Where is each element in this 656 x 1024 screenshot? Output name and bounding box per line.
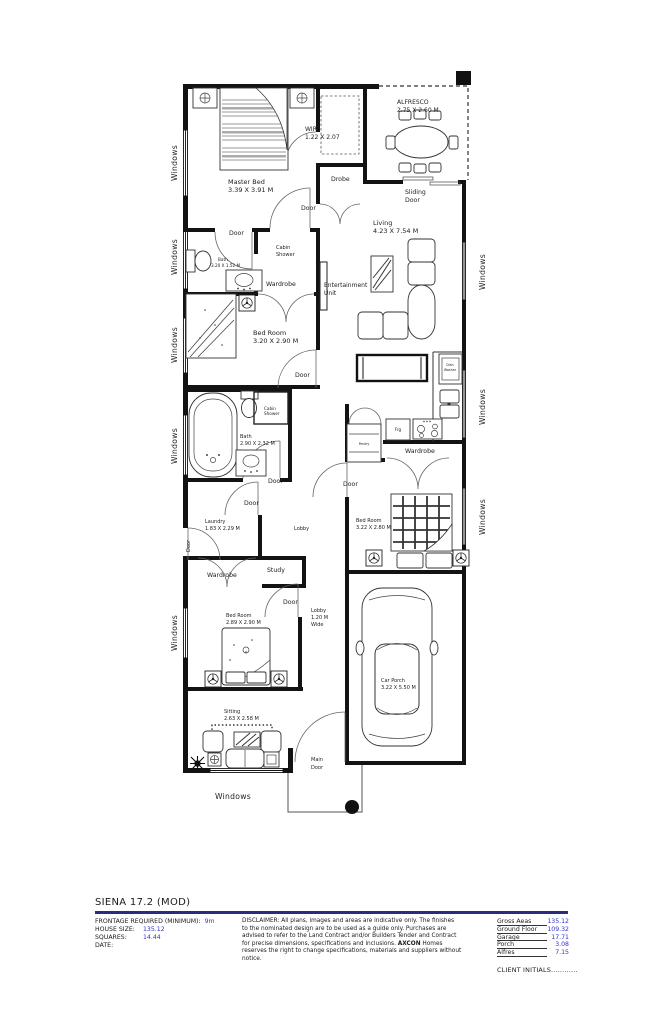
sofa bbox=[358, 239, 435, 339]
svg-text:4.23 X 7.54 M: 4.23 X 7.54 M bbox=[373, 227, 418, 235]
living-furniture bbox=[320, 239, 435, 381]
sitting-furniture bbox=[190, 725, 281, 771]
svg-text:Washer: Washer bbox=[444, 368, 457, 372]
label-pantry: Pantry bbox=[359, 442, 370, 446]
label-fridge: Frg bbox=[395, 427, 402, 432]
label-bed2: Bed Room bbox=[253, 329, 286, 337]
svg-text:3.20 X 2.90 M: 3.20 X 2.90 M bbox=[253, 337, 298, 345]
svg-text:Windows: Windows bbox=[170, 615, 179, 651]
label-bath1: Bath bbox=[218, 257, 228, 262]
label-laundry: Laundry bbox=[205, 519, 225, 525]
title-rule bbox=[95, 911, 568, 914]
svg-text:Door: Door bbox=[186, 539, 192, 552]
svg-text:Door: Door bbox=[311, 765, 324, 771]
bed4-furniture bbox=[366, 494, 469, 568]
svg-text:Door: Door bbox=[283, 599, 298, 606]
svg-text:Door: Door bbox=[301, 205, 316, 212]
brand-name: AXCON bbox=[398, 941, 421, 947]
svg-text:3.39 X 3.91 M: 3.39 X 3.91 M bbox=[228, 186, 273, 194]
corner-post bbox=[456, 71, 471, 85]
bed2-furniture bbox=[186, 294, 255, 358]
svg-text:Door: Door bbox=[343, 481, 358, 488]
alfresco-dining-set bbox=[386, 110, 458, 173]
pillow bbox=[247, 672, 266, 683]
label-lobby-wide: Lobby bbox=[311, 608, 326, 614]
pillow bbox=[426, 553, 452, 568]
svg-text:2.89 X 2.90 M: 2.89 X 2.90 M bbox=[226, 620, 261, 626]
table-row: Porch3.08 bbox=[497, 941, 569, 949]
svg-text:Windows: Windows bbox=[170, 327, 179, 363]
pillow bbox=[397, 553, 423, 568]
svg-text:Door: Door bbox=[295, 372, 310, 379]
label-bath2: Bath bbox=[240, 434, 252, 440]
squares-value: 14.44 bbox=[143, 934, 161, 941]
client-initials: CLIENT INITIALS............ bbox=[497, 966, 578, 974]
svg-text:Unit: Unit bbox=[324, 290, 337, 297]
svg-text:3.22 X 5.50 M: 3.22 X 5.50 M bbox=[381, 685, 416, 691]
svg-text:1.83 X 2.29 M: 1.83 X 2.29 M bbox=[205, 526, 240, 532]
svg-text:3.20 X 1.52 M: 3.20 X 1.52 M bbox=[211, 263, 241, 268]
table-row: Ground Floor109.32 bbox=[497, 926, 569, 934]
floor-plan-drawing: Master Bed 3.39 X 3.91 M WIR 1.22 X 2.07… bbox=[0, 0, 656, 890]
frontage-label: FRONTAGE REQUIRED (MINIMUM): bbox=[95, 918, 201, 925]
mirror bbox=[356, 641, 364, 655]
pillow bbox=[226, 672, 245, 683]
plan-specs: FRONTAGE REQUIRED (MINIMUM):9m HOUSE SIZ… bbox=[95, 918, 245, 950]
label-dishwasher: Dish bbox=[446, 363, 453, 367]
sliding-door-panel bbox=[430, 182, 460, 185]
label-wir: WIR bbox=[305, 126, 317, 133]
squares-label: SQUARES: bbox=[95, 934, 139, 942]
svg-text:2.63 X 2.58 M: 2.63 X 2.58 M bbox=[224, 716, 259, 722]
label-sitting: Sitting bbox=[224, 709, 240, 715]
svg-text:Door: Door bbox=[405, 197, 420, 204]
label-study: Study bbox=[267, 567, 285, 574]
label-lobby: Lobby bbox=[294, 526, 309, 532]
svg-text:Windows: Windows bbox=[478, 389, 487, 425]
svg-text:Shower: Shower bbox=[264, 411, 280, 416]
tv-cabinet bbox=[264, 752, 279, 767]
label-alfresco: ALFRESCO bbox=[397, 99, 429, 106]
armchair bbox=[203, 731, 223, 752]
label-wardrobe-3: Wardrobe bbox=[405, 448, 435, 455]
svg-text:Windows: Windows bbox=[478, 499, 487, 535]
wir-shelving bbox=[321, 96, 359, 154]
svg-text:Shower: Shower bbox=[276, 252, 296, 258]
label-bed4: Bed Room bbox=[356, 518, 382, 524]
label-cabin-shower: Cabin bbox=[276, 245, 290, 251]
entry-post bbox=[345, 800, 359, 814]
svg-text:Windows: Windows bbox=[170, 239, 179, 275]
svg-text:Door: Door bbox=[229, 230, 244, 237]
areas-table: Gross Aeas135.12 Ground Floor109.32 Gara… bbox=[497, 918, 569, 957]
svg-text:2.90 X 2.32 M: 2.90 X 2.32 M bbox=[240, 441, 275, 447]
house-size-label: HOUSE SIZE: bbox=[95, 926, 139, 934]
master-bed-furniture bbox=[193, 88, 314, 170]
svg-text:Windows: Windows bbox=[215, 792, 251, 801]
mirror bbox=[430, 641, 438, 655]
plant bbox=[190, 756, 205, 771]
armchair bbox=[261, 731, 281, 752]
svg-text:2.75 X 2.60 M: 2.75 X 2.60 M bbox=[397, 107, 439, 114]
label-sliding-door: Sliding bbox=[405, 189, 426, 196]
label-wardrobe-2: Wardrobe bbox=[207, 572, 237, 579]
svg-text:1.20 M: 1.20 M bbox=[311, 615, 328, 621]
label-bed3: Bed Room bbox=[226, 613, 252, 619]
svg-text:Door: Door bbox=[268, 478, 283, 485]
svg-text:Windows: Windows bbox=[170, 145, 179, 181]
svg-text:3.22 X 2.80 M: 3.22 X 2.80 M bbox=[356, 525, 391, 531]
bed3-furniture bbox=[205, 628, 287, 687]
label-main-door: Main bbox=[311, 757, 323, 763]
toilet-bowl bbox=[195, 251, 211, 271]
label-wardrobe-1: Wardrobe bbox=[266, 281, 296, 288]
island-bench bbox=[357, 355, 427, 381]
table-row: Gross Aeas135.12 bbox=[497, 918, 569, 926]
bath2-fixtures bbox=[189, 391, 288, 477]
sink-bowl bbox=[440, 390, 459, 403]
bathtub bbox=[189, 393, 237, 477]
table-row: Alfres7.15 bbox=[497, 949, 569, 957]
disclaimer: DISCLAIMER: All plans, images and areas … bbox=[242, 918, 482, 964]
label-car-porch: Car Porch bbox=[381, 678, 405, 684]
label-drobe: Drobe bbox=[331, 176, 350, 183]
plan-title: SIENA 17.2 (MOD) bbox=[95, 897, 190, 908]
date-label: DATE: bbox=[95, 942, 113, 949]
svg-text:Wide: Wide bbox=[311, 622, 323, 628]
table-row: Garage17.71 bbox=[497, 934, 569, 942]
svg-text:Door: Door bbox=[244, 500, 259, 507]
label-entertainment: Entertainment bbox=[324, 282, 368, 289]
sink-bowl bbox=[440, 405, 459, 418]
label-master-bed: Master Bed bbox=[228, 178, 265, 186]
frontage-value: 9m bbox=[205, 918, 215, 925]
svg-text:Windows: Windows bbox=[478, 254, 487, 290]
label-living: Living bbox=[373, 219, 392, 227]
house-size-value: 135.12 bbox=[143, 926, 165, 933]
cooktop bbox=[413, 419, 442, 439]
floor-plan-page: Master Bed 3.39 X 3.91 M WIR 1.22 X 2.07… bbox=[0, 0, 656, 1024]
car bbox=[356, 588, 438, 746]
toilet-tank bbox=[186, 250, 195, 272]
sliding-door-panel bbox=[403, 177, 433, 180]
svg-text:1.22 X 2.07: 1.22 X 2.07 bbox=[305, 134, 340, 141]
svg-text:Windows: Windows bbox=[170, 428, 179, 464]
